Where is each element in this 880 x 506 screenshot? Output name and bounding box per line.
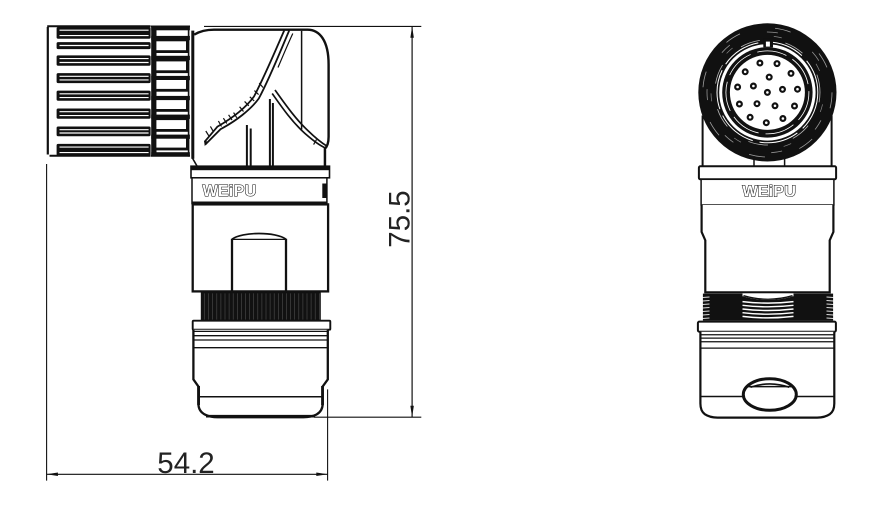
svg-text:WEiPU: WEiPU bbox=[742, 184, 796, 201]
svg-text:54.2: 54.2 bbox=[157, 447, 214, 480]
svg-text:75.5: 75.5 bbox=[384, 190, 417, 247]
svg-text:WEiPU: WEiPU bbox=[203, 183, 257, 200]
